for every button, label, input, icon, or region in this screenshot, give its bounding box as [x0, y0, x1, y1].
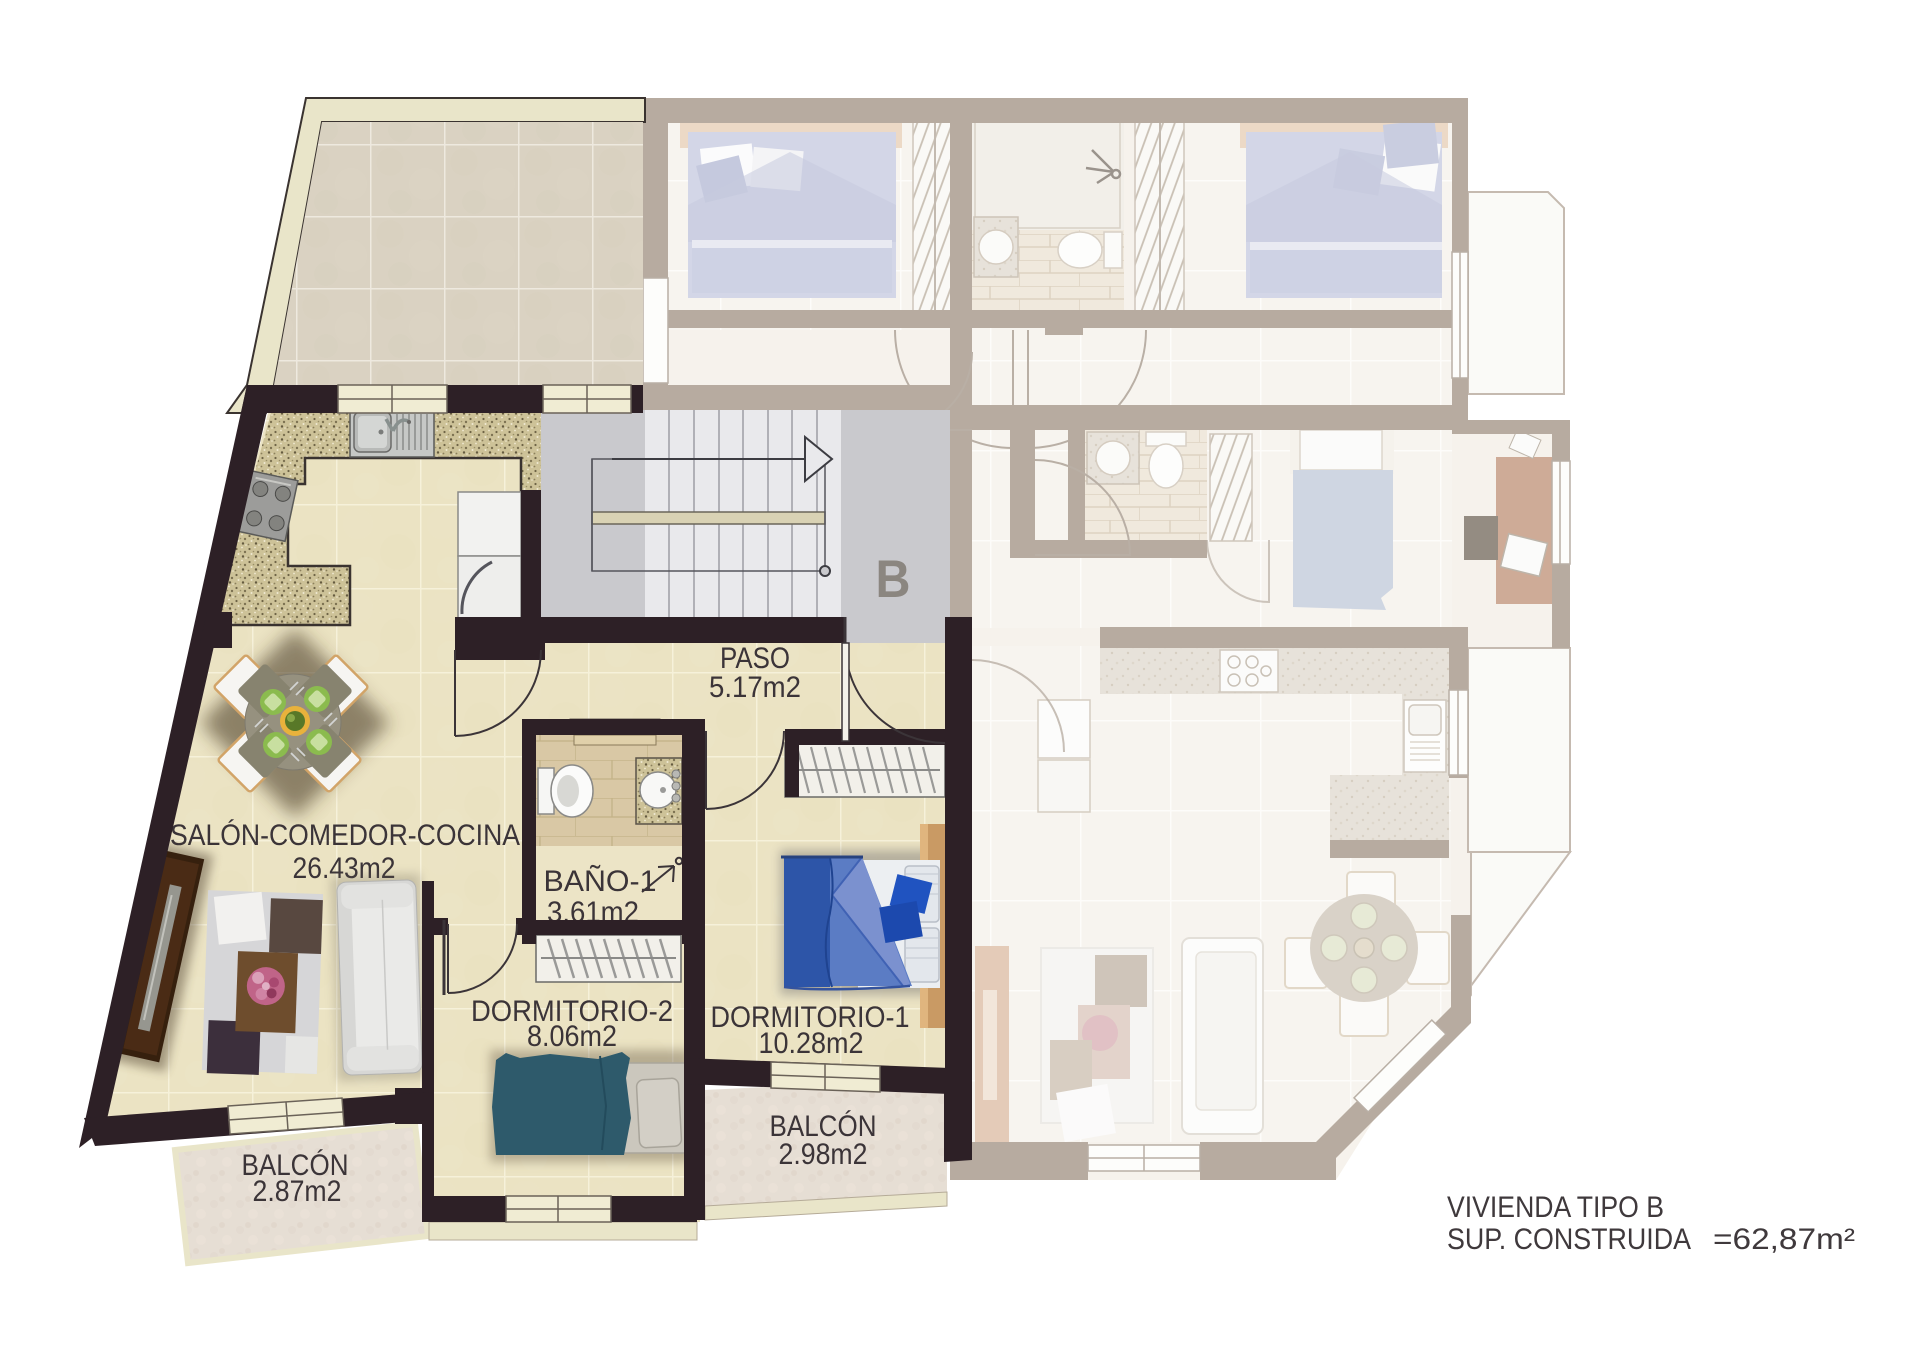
svg-text:5.17m2: 5.17m2 [709, 671, 801, 704]
svg-text:SUP. CONSTRUIDA: SUP. CONSTRUIDA [1447, 1223, 1691, 1256]
svg-text:2.87m2: 2.87m2 [253, 1175, 342, 1208]
svg-text:B: B [876, 550, 911, 609]
svg-text:=62,87m²: =62,87m² [1713, 1223, 1855, 1256]
svg-text:2.98m2: 2.98m2 [779, 1138, 868, 1171]
svg-text:SALÓN-COMEDOR-COCINA: SALÓN-COMEDOR-COCINA [170, 819, 520, 852]
svg-text:10.28m2: 10.28m2 [759, 1027, 864, 1060]
svg-text:BAÑO-1: BAÑO-1 [544, 864, 657, 898]
svg-text:VIVIENDA TIPO B: VIVIENDA TIPO B [1447, 1191, 1664, 1224]
svg-text:8.06m2: 8.06m2 [527, 1020, 617, 1053]
